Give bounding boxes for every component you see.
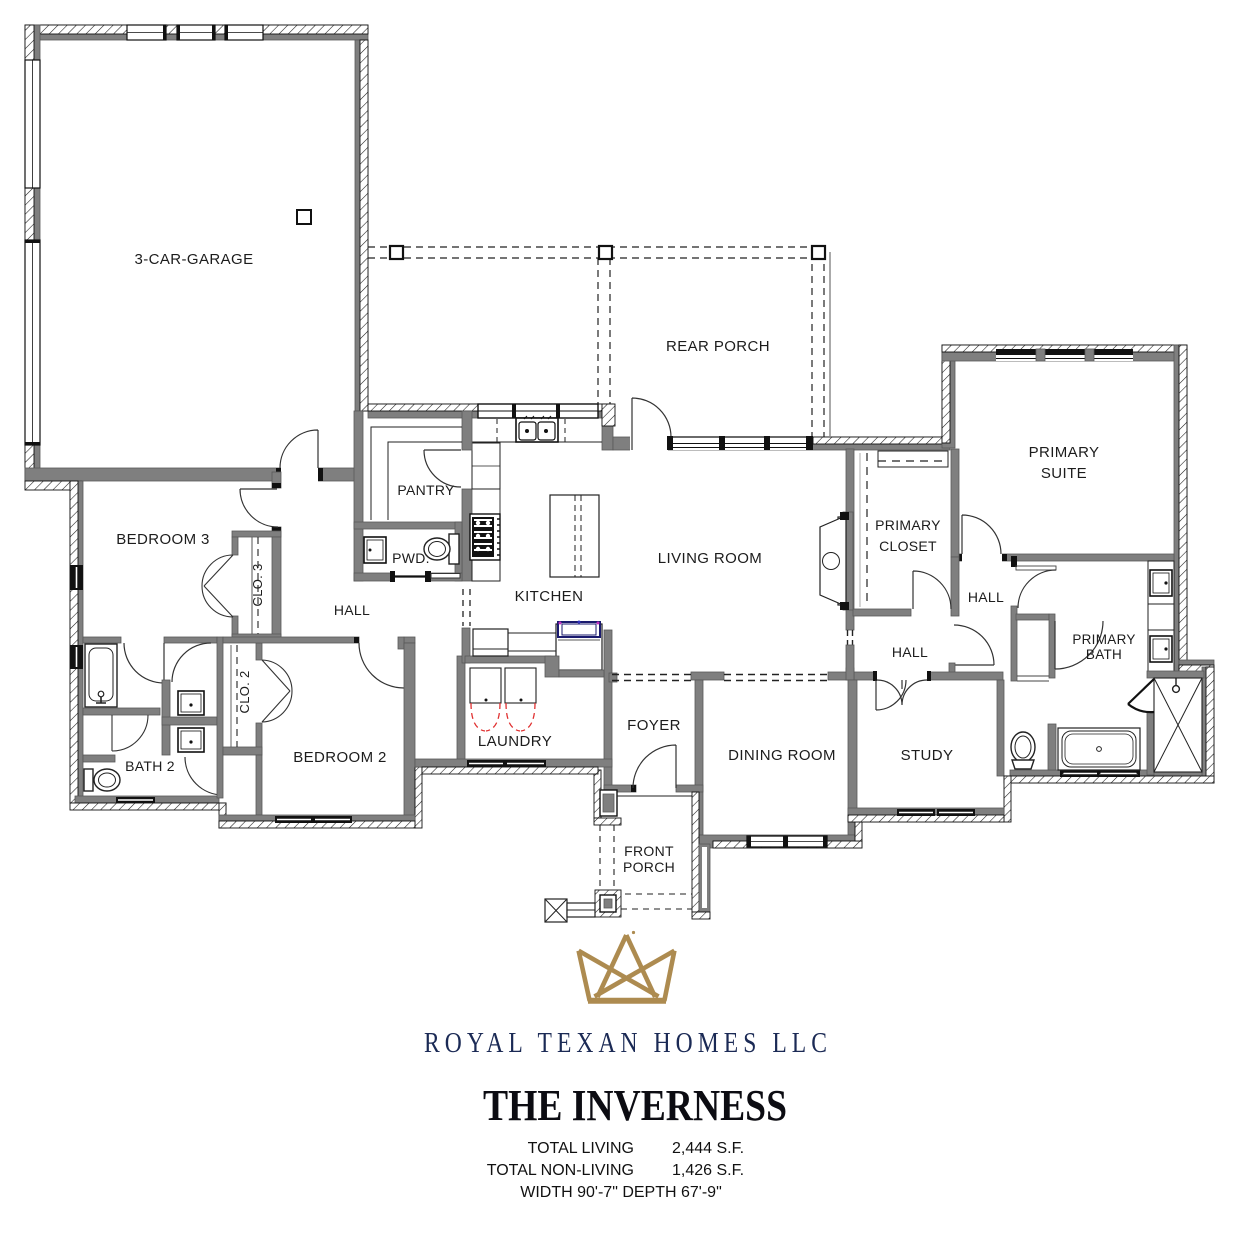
svg-text:CLO. 2: CLO. 2 <box>237 671 252 714</box>
svg-text:2,444 S.F.: 2,444 S.F. <box>672 1140 744 1157</box>
svg-text:PRIMARY: PRIMARY <box>1072 632 1135 647</box>
svg-text:WIDTH 90'-7" DEPTH 67'-9": WIDTH 90'-7" DEPTH 67'-9" <box>520 1184 722 1201</box>
svg-text:PRIMARY: PRIMARY <box>875 517 941 533</box>
svg-text:ROYAL TEXAN HOMES LLC: ROYAL TEXAN HOMES LLC <box>424 1028 832 1059</box>
svg-text:BATH 2: BATH 2 <box>125 758 175 774</box>
svg-text:BATH: BATH <box>1086 647 1122 662</box>
svg-text:BEDROOM 3: BEDROOM 3 <box>116 531 210 548</box>
svg-text:KITCHEN: KITCHEN <box>515 588 584 605</box>
svg-text:FRONT: FRONT <box>624 843 674 859</box>
svg-text:CLO. 3: CLO. 3 <box>250 564 265 607</box>
svg-text:3-CAR-GARAGE: 3-CAR-GARAGE <box>135 251 254 268</box>
svg-text:TOTAL NON-LIVING: TOTAL NON-LIVING <box>487 1162 634 1179</box>
svg-text:SUITE: SUITE <box>1041 465 1087 482</box>
svg-text:HALL: HALL <box>968 589 1004 605</box>
svg-text:THE INVERNESS: THE INVERNESS <box>483 1081 787 1130</box>
svg-text:1,426 S.F.: 1,426 S.F. <box>672 1162 744 1179</box>
svg-text:DINING ROOM: DINING ROOM <box>728 747 836 764</box>
svg-text:PRIMARY: PRIMARY <box>1029 444 1100 461</box>
svg-text:LIVING ROOM: LIVING ROOM <box>658 550 762 567</box>
svg-text:TOTAL LIVING: TOTAL LIVING <box>528 1140 634 1157</box>
svg-text:PWD.: PWD. <box>392 550 430 566</box>
svg-text:PORCH: PORCH <box>623 859 675 875</box>
svg-text:STUDY: STUDY <box>901 747 954 764</box>
svg-text:CLOSET: CLOSET <box>879 538 937 554</box>
svg-text:FOYER: FOYER <box>627 717 681 734</box>
svg-text:HALL: HALL <box>334 602 370 618</box>
svg-text:BEDROOM 2: BEDROOM 2 <box>293 749 387 766</box>
svg-text:LAUNDRY: LAUNDRY <box>478 733 552 750</box>
svg-text:REAR PORCH: REAR PORCH <box>666 338 770 355</box>
svg-text:HALL: HALL <box>892 644 928 660</box>
